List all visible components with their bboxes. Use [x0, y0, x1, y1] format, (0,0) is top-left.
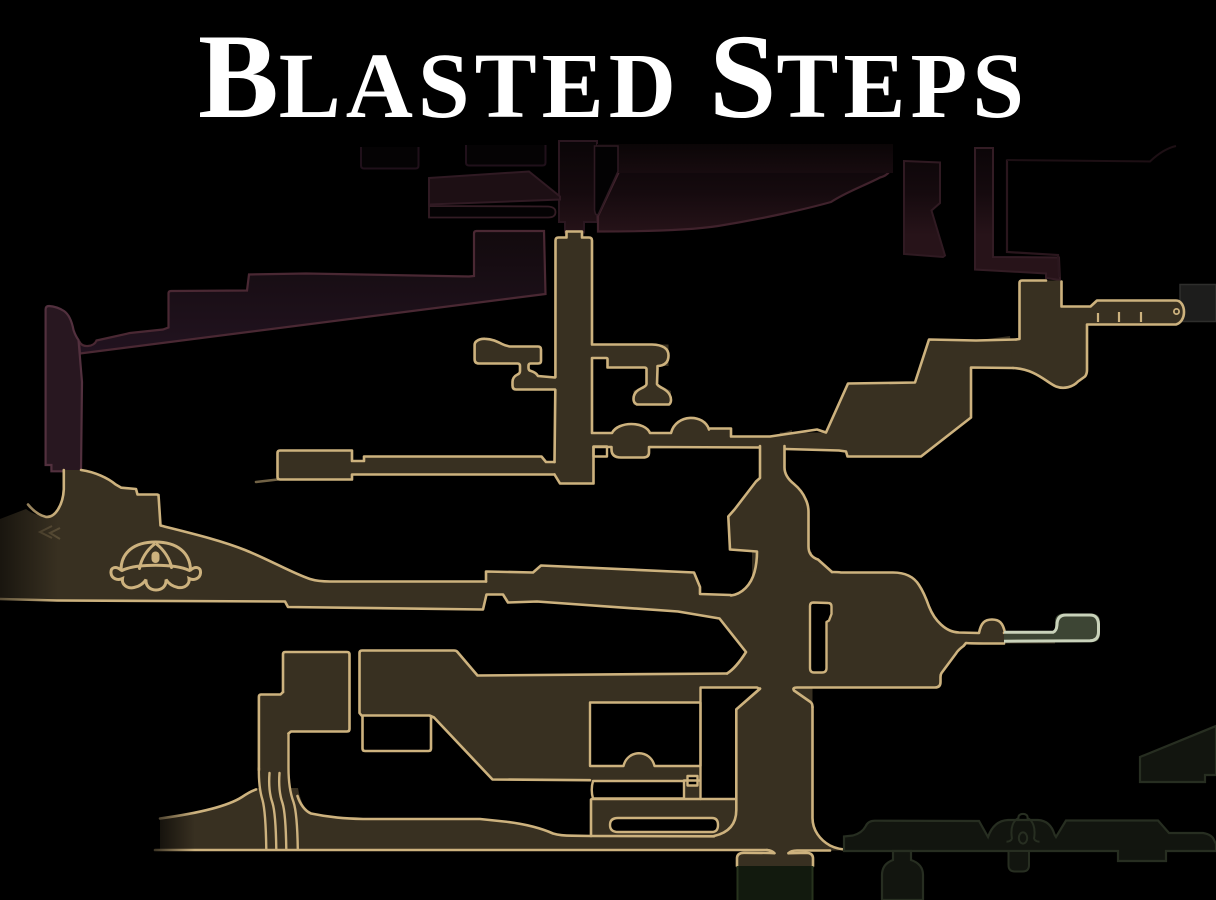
svg-text:BLASTED STEPS: BLASTED STEPS [198, 10, 1029, 144]
